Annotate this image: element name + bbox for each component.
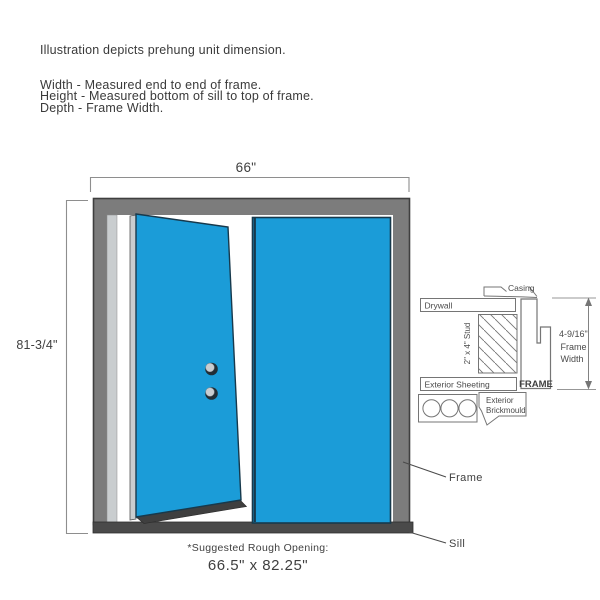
sill-callout: Sill [399, 529, 465, 550]
cross-section: Casing Drywall 2" x 4" Stud Exterior She… [419, 283, 597, 425]
exterior-brickmould-label-line2: Brickmould [486, 406, 526, 415]
casing-callout-outline-left [484, 287, 507, 296]
sill-callout-label: Sill [449, 538, 465, 550]
rough-opening-value: 66.5" x 82.25" [208, 557, 308, 574]
left-door-panel [136, 214, 241, 517]
right-door-panel [253, 218, 391, 524]
brickmould-circle-2 [441, 400, 458, 417]
rough-opening-caption: *Suggested Rough Opening: [187, 542, 328, 554]
width-dimension-label: 66" [236, 160, 257, 175]
door-handle-knob [205, 387, 218, 400]
deadbolt-knob-face [206, 363, 215, 372]
right-door [253, 218, 391, 524]
left-jamb-face [107, 215, 117, 523]
width-dimension: 66" [91, 160, 410, 192]
frame-callout: Frame [403, 462, 483, 484]
frame-callout-label: Frame [449, 472, 483, 484]
height-dimension: 81-3/4" [16, 201, 88, 534]
stud-label: 2" x 4" Stud [463, 323, 472, 365]
frame-width-label-line2: Width [561, 354, 584, 364]
stud-hatching [479, 315, 518, 374]
brickmould-circle-1 [423, 400, 440, 417]
casing-callout-underline [484, 296, 537, 298]
frame-profile-label: FRAME [519, 379, 553, 390]
drywall-label: Drywall [425, 301, 453, 311]
frame-width-arrowhead-up [585, 298, 592, 307]
frame-width-arrowhead-down [585, 381, 592, 390]
exterior-sheeting-label: Exterior Sheeting [425, 380, 490, 390]
deadbolt-knob [205, 363, 218, 376]
prehung-door-diagram: 66" 81-3/4" Frame Sill *S [0, 0, 600, 600]
casing-label: Casing [508, 283, 535, 293]
frame-profile [521, 299, 551, 389]
frame-width-value: 4-9/16" [559, 329, 588, 339]
frame-width-label-line1: Frame [561, 342, 587, 352]
exterior-brickmould-label-line1: Exterior [486, 396, 514, 405]
width-dimension-bracket [91, 178, 410, 193]
sill-callout-leader [399, 529, 446, 543]
left-door-hinge-edge [130, 215, 136, 520]
left-door [130, 214, 247, 524]
brickmould-circle-3 [459, 400, 476, 417]
door-handle-knob-face [206, 388, 215, 397]
height-dimension-bracket [67, 201, 89, 534]
height-dimension-label: 81-3/4" [16, 338, 57, 352]
